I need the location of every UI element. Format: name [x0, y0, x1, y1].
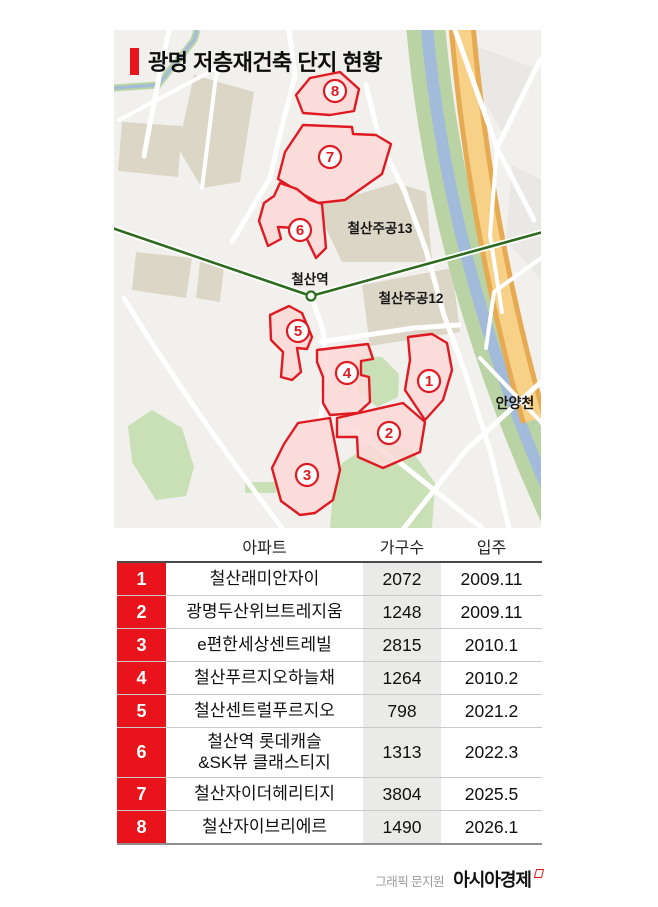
row-number: 7	[117, 778, 166, 811]
title-text: 광명 저층재건축 단지 현황	[148, 45, 382, 77]
table-row: 8 철산자이브리에르 1490 2026.1	[117, 811, 542, 845]
complex-table: 아파트 가구수 입주 1 철산래미안자이 2072 2009.11 2 광명두산…	[117, 530, 542, 845]
row-number: 2	[117, 596, 166, 629]
table-row: 5 철산센트럴푸르지오 798 2021.2	[117, 695, 542, 728]
movein-value: 2026.1	[441, 811, 542, 845]
households-value: 798	[363, 695, 441, 728]
households-value: 1248	[363, 596, 441, 629]
svg-text:3: 3	[303, 467, 311, 484]
header-households: 가구수	[363, 530, 441, 562]
table-row: 6 철산역 롯데캐슬 &SK뷰 클래스티지 1313 2022.3	[117, 728, 542, 778]
movein-value: 2010.2	[441, 662, 542, 695]
brand-logo: 아시아경제	[453, 866, 531, 892]
header-no	[117, 530, 166, 562]
svg-text:2: 2	[385, 425, 393, 442]
svg-text:6: 6	[296, 222, 304, 239]
table-row: 4 철산푸르지오하늘채 1264 2010.2	[117, 662, 542, 695]
svg-text:1: 1	[425, 373, 433, 390]
households-value: 2815	[363, 629, 441, 662]
table-row: 1 철산래미안자이 2072 2009.11	[117, 562, 542, 596]
apartment-name: 철산센트럴푸르지오	[166, 695, 363, 728]
brand-flag-icon	[534, 869, 544, 878]
apartment-name: 광명두산위브트레지움	[166, 596, 363, 629]
svg-text:5: 5	[294, 323, 302, 340]
zone-badge-3: 3	[296, 464, 318, 486]
label-station: 철산역	[291, 271, 328, 287]
households-value: 3804	[363, 778, 441, 811]
table-row: 2 광명두산위브트레지움 1248 2009.11	[117, 596, 542, 629]
households-value: 1490	[363, 811, 441, 845]
apartment-name: 철산래미안자이	[166, 562, 363, 596]
svg-text:4: 4	[343, 365, 352, 382]
graphics-credit: 그래픽 문지원	[375, 871, 444, 890]
movein-value: 2021.2	[441, 695, 542, 728]
households-value: 1313	[363, 728, 441, 778]
table-row: 3 e편한세상센트레빌 2815 2010.1	[117, 629, 542, 662]
footer-credit: 그래픽 문지원 아시아경제	[375, 866, 541, 892]
header-apartment: 아파트	[166, 530, 363, 562]
zone-badge-7: 7	[319, 146, 341, 168]
table-row: 7 철산자이더헤리티지 3804 2025.5	[117, 778, 542, 811]
label-river: 안양천	[496, 395, 535, 411]
movein-value: 2009.11	[441, 562, 542, 596]
movein-value: 2009.11	[441, 596, 542, 629]
households-value: 2072	[363, 562, 441, 596]
row-number: 6	[117, 728, 166, 778]
movein-value: 2025.5	[441, 778, 542, 811]
title-accent-bar	[130, 48, 139, 75]
svg-text:7: 7	[326, 149, 334, 166]
zone-badge-6: 6	[289, 219, 311, 241]
header-movein: 입주	[441, 530, 542, 562]
row-number: 1	[117, 562, 166, 596]
page-title: 광명 저층재건축 단지 현황	[130, 45, 382, 77]
infographic-page: 철산주공13 철산주공12 철산역 안양천 8 7 6 5 4	[0, 0, 658, 907]
table-header-row: 아파트 가구수 입주	[117, 530, 542, 562]
apartment-name: e편한세상센트레빌	[166, 629, 363, 662]
apartment-name: 철산역 롯데캐슬 &SK뷰 클래스티지	[166, 728, 363, 778]
movein-value: 2022.3	[441, 728, 542, 778]
label-jugong12: 철산주공12	[379, 290, 444, 306]
svg-text:8: 8	[331, 83, 339, 100]
apartment-name: 철산자이더헤리티지	[166, 778, 363, 811]
households-value: 1264	[363, 662, 441, 695]
apartment-name: 철산자이브리에르	[166, 811, 363, 845]
movein-value: 2010.1	[441, 629, 542, 662]
label-jugong13: 철산주공13	[348, 220, 413, 236]
row-number: 8	[117, 811, 166, 845]
row-number: 5	[117, 695, 166, 728]
station-marker	[307, 292, 316, 301]
map: 철산주공13 철산주공12 철산역 안양천 8 7 6 5 4	[114, 30, 541, 528]
row-number: 4	[117, 662, 166, 695]
zone-badge-2: 2	[378, 422, 400, 444]
zone-badge-1: 1	[418, 370, 440, 392]
row-number: 3	[117, 629, 166, 662]
apartment-name: 철산푸르지오하늘채	[166, 662, 363, 695]
zone-badge-4: 4	[336, 362, 358, 384]
zone-badge-5: 5	[287, 320, 309, 342]
zone-badge-8: 8	[324, 80, 346, 102]
